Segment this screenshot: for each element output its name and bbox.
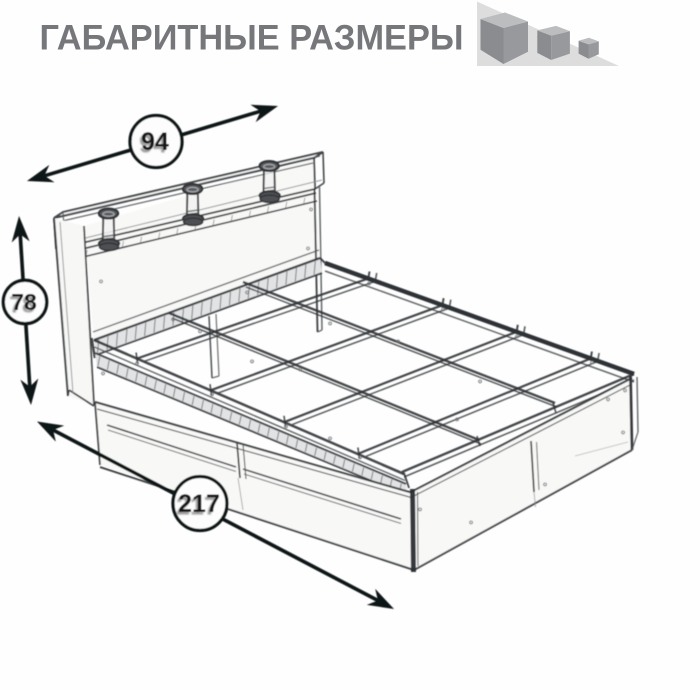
svg-text:94: 94 bbox=[141, 128, 169, 156]
svg-text:78: 78 bbox=[11, 289, 37, 315]
svg-text:217: 217 bbox=[178, 490, 220, 518]
svg-text:ГАБАРИТНЫЕ РАЗМЕРЫ: ГАБАРИТНЫЕ РАЗМЕРЫ bbox=[40, 18, 464, 58]
